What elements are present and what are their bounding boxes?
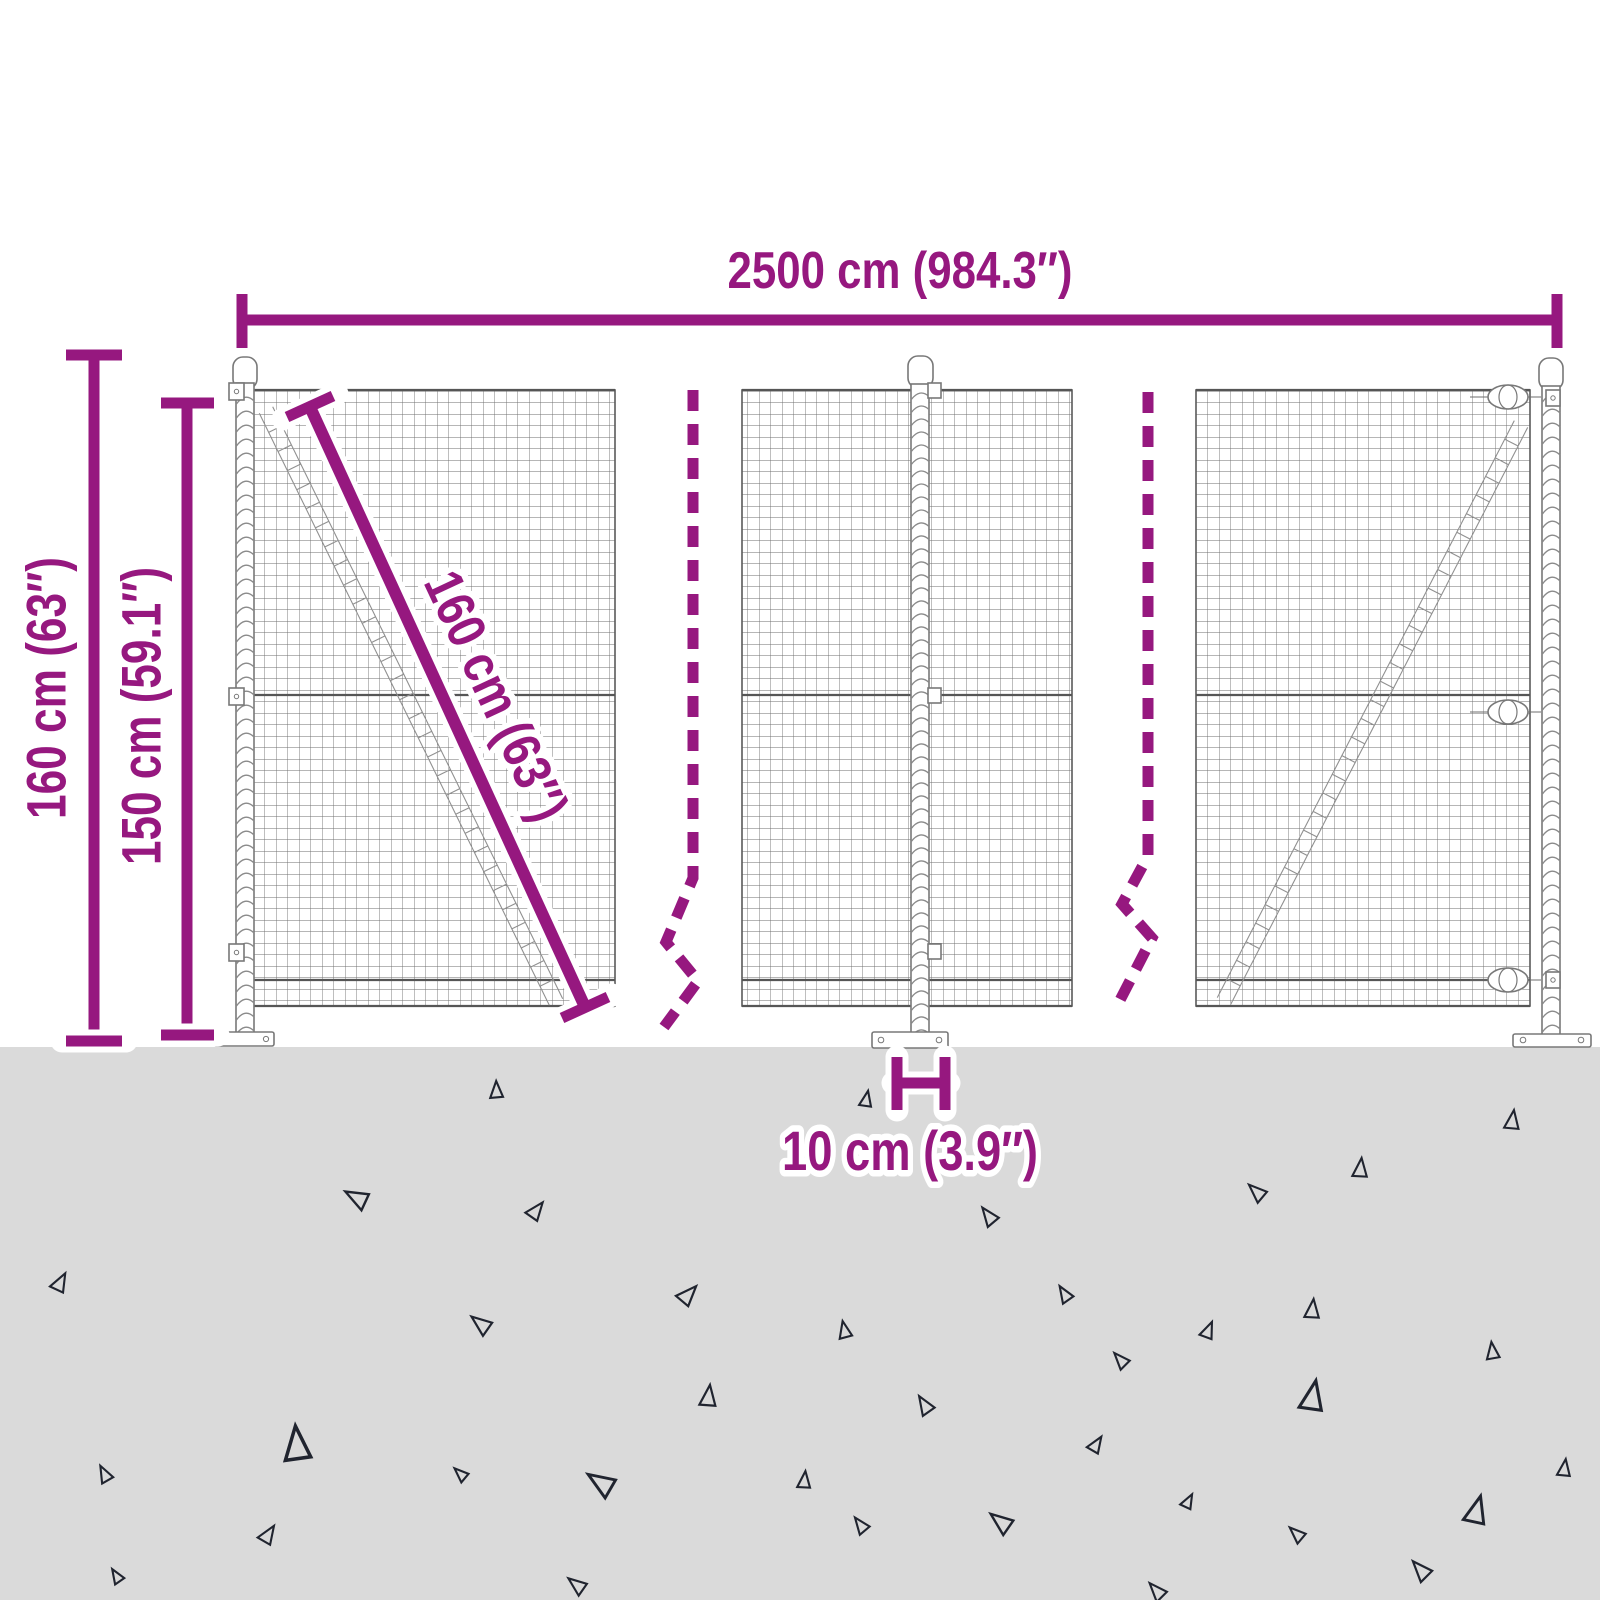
dimension-height-mesh-label: 150 cm (59.1″) [110,567,173,865]
fence-dimension-diagram: 2500 cm (984.3″) 160 cm (63″) 150 cm (59… [0,0,1600,1600]
post-clamp [1546,972,1560,988]
mesh-panel [742,390,1072,1006]
post-clamp [1546,390,1560,406]
mesh-panel [1196,390,1530,1006]
diagram-canvas: 2500 cm (984.3″) 160 cm (63″) 150 cm (59… [0,0,1600,1600]
post-clamp [928,688,941,703]
dimension-height-total-label: 160 cm (63″) [15,557,78,819]
fence-panel-right [1196,390,1530,1006]
fence [214,356,1591,1048]
post-clamp [229,688,244,705]
dimension-post-depth-label: 10 cm (3.9″) [782,1119,1038,1182]
post-clamp [928,944,941,959]
base-plate [1513,1034,1591,1047]
post-clamp [928,383,941,398]
dimension-width-label: 2500 cm (984.3″) [728,242,1073,300]
post-clamp [229,944,244,961]
post-clamp [229,383,244,400]
fence-panel-middle [742,390,1072,1006]
